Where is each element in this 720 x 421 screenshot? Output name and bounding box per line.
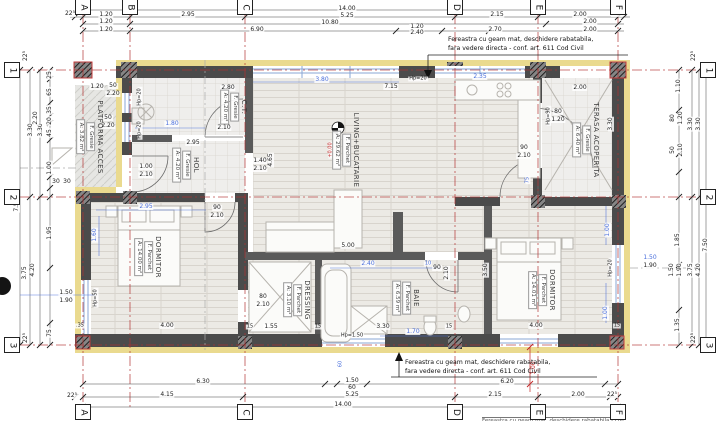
room-area: A: 3.10 m²	[283, 283, 292, 318]
dim-label: 6.90	[249, 27, 264, 33]
dim-label: 2.95	[138, 204, 153, 210]
dim-label: 14.00	[333, 402, 352, 408]
grid-marker-1: 1	[4, 62, 20, 78]
dim-label: 1.90	[642, 263, 657, 269]
dim-label: 80	[670, 113, 676, 123]
dim-label: 3.75	[688, 262, 694, 277]
room-label-c-t-: C.T.F. GresieA: 4.20 m²	[220, 90, 248, 125]
room-area: A: 4.20 m²	[172, 148, 181, 183]
dim-label: 4.20	[30, 262, 36, 277]
grid-marker-B: B	[122, 0, 138, 15]
room-name: DORMITOR	[154, 236, 162, 278]
room-name: C.T.	[240, 100, 248, 114]
room-finish: F. Gresie	[182, 150, 191, 179]
dim-label: 2.10	[678, 142, 684, 157]
dim-label: Hp=50	[94, 288, 99, 308]
dim-label: 5.00	[340, 243, 355, 249]
north-arrow-icon	[0, 277, 11, 295]
room-label-hol: HOLF. GresieA: 4.20 m²	[172, 148, 200, 183]
dim-label: 1.20	[98, 19, 113, 25]
dim-label: 1.10	[676, 78, 682, 93]
dim-label: 2.10	[209, 213, 224, 219]
grid-marker-label: F	[614, 4, 623, 9]
grid-marker-C: C	[237, 0, 253, 15]
grid-marker-label: E	[534, 4, 543, 10]
room-finish: F. Gresie	[86, 122, 95, 151]
dim-label: 2.00	[570, 392, 585, 398]
room-finish: F. Parchet	[538, 274, 547, 306]
grid-marker-label: E	[534, 409, 543, 415]
dim-label: 50	[670, 145, 676, 155]
dim-label: 4.15	[159, 392, 174, 398]
dim-label: 3.75	[22, 265, 28, 280]
dim-label: 15	[445, 325, 453, 330]
dim-label: 6.30	[195, 379, 210, 385]
room-area: A: 29.62 m²	[332, 131, 341, 169]
grid-marker-2: 2	[700, 189, 716, 205]
dim-label: 3.30	[375, 324, 390, 330]
room-label-living-bucatarie: LIVING+BUCATARIEF. ParchetA: 29.62 m²	[332, 113, 360, 188]
dim-label: 2.20	[33, 110, 39, 125]
dim-label: 80	[258, 294, 268, 300]
dim-label: 1.20	[678, 110, 684, 125]
dim-label: 15	[246, 325, 254, 330]
grid-marker-label: 3	[7, 342, 16, 348]
dim-label: 1.00	[603, 305, 609, 320]
dim-label: 15	[613, 324, 621, 329]
dim-label: 1.60	[92, 227, 98, 242]
grid-marker-label: 2	[7, 194, 16, 200]
dim-label: 4.20	[696, 262, 702, 277]
dim-label: 50	[103, 115, 113, 121]
grid-marker-label: D	[451, 4, 460, 11]
room-area: A: 14.00 m²	[134, 238, 143, 276]
grid-marker-label: C	[240, 409, 249, 415]
dim-label: 1.80	[164, 121, 179, 127]
grid-marker-1: 1	[700, 62, 716, 78]
dim-label: 2.70	[487, 27, 502, 33]
room-finish: F. Gresie	[230, 92, 239, 121]
room-name: HOL	[192, 157, 200, 173]
dim-label: 2.10	[216, 125, 231, 131]
room-name: BAIE	[412, 289, 420, 307]
dim-label: 1.90	[677, 262, 683, 277]
room-label-dormitor: DORMITORF. ParchetA: 14.01 m²	[528, 269, 556, 311]
dim-label: 3.30	[608, 116, 614, 131]
grid-marker-E: E	[530, 0, 546, 15]
grid-marker-2: 2	[4, 189, 20, 205]
dim-label: 50	[108, 83, 118, 89]
dim-label: Hp=1.50	[340, 334, 364, 339]
grid-marker-label: 3	[703, 342, 712, 348]
dim-label: 90	[212, 205, 222, 211]
dim-label: 2.10	[138, 172, 153, 178]
dim-label: 22⁵	[23, 332, 29, 344]
dim-label: 2.95	[185, 140, 200, 146]
grid-marker-label: 2	[703, 194, 712, 200]
dim-label: 10	[424, 262, 432, 267]
grid-marker-3: 3	[4, 337, 20, 353]
dim-label: 6.20	[499, 379, 514, 385]
room-name: DRESSING	[303, 280, 311, 320]
room-area: A: 14.01 m²	[528, 271, 537, 309]
dim-label: 80	[553, 109, 563, 115]
dim-label: 2.40	[360, 261, 375, 267]
dim-label: 10.80	[320, 20, 339, 26]
dim-label: 22⁵	[606, 392, 618, 398]
grid-marker-D: D	[447, 0, 463, 15]
dim-label: 1.55	[263, 324, 278, 330]
dim-label: 3.80	[314, 77, 329, 83]
dim-label: 7.15	[383, 84, 398, 90]
dim-label: 3.30	[688, 116, 694, 131]
dim-label: 1.00	[47, 160, 53, 175]
dim-label: 2.00	[582, 19, 597, 25]
room-area: A: 4.20 m²	[220, 90, 229, 125]
dim-label: 2.15	[489, 12, 504, 18]
room-label-platforma-acces: PLATFORMA ACCESF. GresieA: 3.82 m²	[76, 100, 104, 174]
dim-label: 3.50	[483, 262, 489, 277]
room-area: A: 6.40 m²	[572, 123, 581, 158]
dim-label: 22⁵	[23, 50, 29, 62]
grid-marker-D: D	[447, 404, 463, 420]
dim-label: Hp=20	[609, 258, 614, 278]
window-note-top: Fereastra cu geam mat, deschidere rabata…	[448, 36, 593, 53]
dim-label: 2.00	[572, 85, 587, 91]
dim-label: Hp=20	[138, 87, 143, 107]
dim-label: 20	[47, 116, 53, 126]
dim-label: 25	[47, 70, 53, 80]
room-name: LIVING+BUCATARIE	[352, 113, 360, 188]
room-label-dressing: DRESSINGF. ParchetA: 3.10 m²	[283, 280, 311, 320]
dim-label: 1.40	[252, 158, 267, 164]
dim-label: 1.50	[642, 255, 657, 261]
room-finish: F. Parchet	[144, 241, 153, 273]
dim-label: 1.35	[675, 317, 681, 332]
dim-label: 2.20	[105, 91, 120, 97]
dim-label: 2.95	[180, 12, 195, 18]
room-area: A: 3.82 m²	[76, 120, 85, 155]
dim-label: 7.50	[703, 237, 709, 252]
dim-label: 5.25	[339, 13, 354, 19]
dim-label: 22⁵	[66, 393, 78, 399]
dim-label: 2.00	[582, 27, 597, 33]
dim-label: 2.10	[444, 265, 450, 280]
floor-plan-drawing	[0, 0, 720, 421]
room-name: PLATFORMA ACCES	[96, 100, 104, 174]
room-label-terasa-acoperita: TERASA ACOPERITAF. GresieA: 6.40 m²	[572, 102, 600, 177]
grid-marker-label: A	[78, 409, 87, 415]
dim-label: 1.50	[58, 290, 73, 296]
dim-label: 1.00	[605, 222, 611, 237]
dim-label: 60	[339, 360, 344, 368]
dim-label: 75	[47, 328, 53, 338]
room-name: DORMITOR	[548, 269, 556, 311]
dim-label: 1.90	[58, 298, 73, 304]
grid-marker-F: F	[610, 0, 626, 15]
dim-label: 4.00	[528, 323, 543, 329]
dim-label: .35	[75, 324, 85, 329]
note-line: Fereastra cu geam mat, deschidere rabata…	[405, 359, 550, 368]
dim-label: 2.35	[472, 74, 487, 80]
dim-label: 22⁵	[691, 50, 697, 62]
window-note-bottom: Fereastra cu geam mat, deschidere rabata…	[405, 359, 550, 376]
grid-marker-3: 3	[700, 337, 716, 353]
dim-label: 90	[519, 145, 529, 151]
dim-label: 22⁵	[691, 332, 697, 344]
note-line: fara vedere directa - conf. art. 611 Cod…	[448, 45, 593, 54]
dim-label: 2.15	[487, 392, 502, 398]
dim-label: 15	[314, 325, 322, 330]
grid-marker-E: E	[530, 404, 546, 420]
room-label-dormitor: DORMITORF. ParchetA: 14.00 m²	[134, 236, 162, 278]
dim-label: 3.30	[696, 116, 702, 131]
grid-marker-label: A	[78, 4, 87, 10]
grid-marker-A: A	[75, 404, 91, 420]
grid-marker-label: 1	[7, 67, 16, 73]
grid-marker-label: D	[451, 409, 460, 416]
note-line: fara vedere directa - conf. art. 611 Cod…	[405, 368, 550, 377]
dim-label: 1.00	[138, 164, 153, 170]
grid-marker-label: C	[240, 4, 249, 10]
room-finish: F. Parchet	[342, 134, 351, 166]
dim-label: 4.65	[268, 152, 274, 167]
room-finish: F. Parchet	[293, 284, 302, 316]
room-area: A: 6.59 m²	[392, 281, 401, 316]
dim-label: 90	[432, 265, 442, 271]
grid-marker-A: A	[75, 0, 91, 15]
dim-label: 45	[47, 128, 53, 138]
dim-label: 35	[47, 105, 53, 115]
grid-marker-F: F	[610, 404, 626, 420]
window-note-partial: Fereastra cu geam mat, deschidere rabata…	[482, 417, 624, 421]
dim-label: 30	[51, 179, 61, 185]
grid-marker-label: F	[614, 409, 623, 414]
grid-marker-label: B	[126, 4, 135, 10]
dim-label: 1.70	[405, 329, 420, 335]
grid-marker-C: C	[237, 404, 253, 420]
dim-label: 2.10	[255, 302, 270, 308]
dim-label: Hp=20	[138, 120, 143, 140]
room-name: TERASA ACOPERITA	[592, 102, 600, 177]
dim-label: 2.10	[252, 166, 267, 172]
dim-label: 30	[62, 179, 72, 185]
dim-label: 1.95	[47, 225, 53, 240]
grid-marker-label: 1	[703, 67, 712, 73]
dim-label: 75	[526, 176, 531, 184]
dim-label: 1.20	[550, 117, 565, 123]
note-line: Fereastra cu geam mat, deschidere rabata…	[448, 36, 593, 45]
dim-label: 1.20	[89, 84, 104, 90]
room-finish: F. Gresie	[582, 125, 591, 154]
floor-plan-screenshot: Fereastra cu geam mat, deschidere rabata…	[0, 0, 720, 421]
dim-label: 2.10	[516, 153, 531, 159]
dim-label: Hp=20	[408, 77, 428, 82]
dim-label: 1.50	[669, 262, 675, 277]
dim-label: 65	[47, 87, 53, 97]
dim-label: 1.20	[98, 27, 113, 33]
dim-label: 2.40	[409, 30, 424, 36]
room-label-baie: BAIEF. ParchetA: 6.59 m²	[392, 281, 420, 316]
dim-label: 1.85	[675, 232, 681, 247]
dim-label: 5.25	[344, 392, 359, 398]
room-finish: F. Parchet	[402, 282, 411, 314]
dim-label: 4.00	[159, 323, 174, 329]
